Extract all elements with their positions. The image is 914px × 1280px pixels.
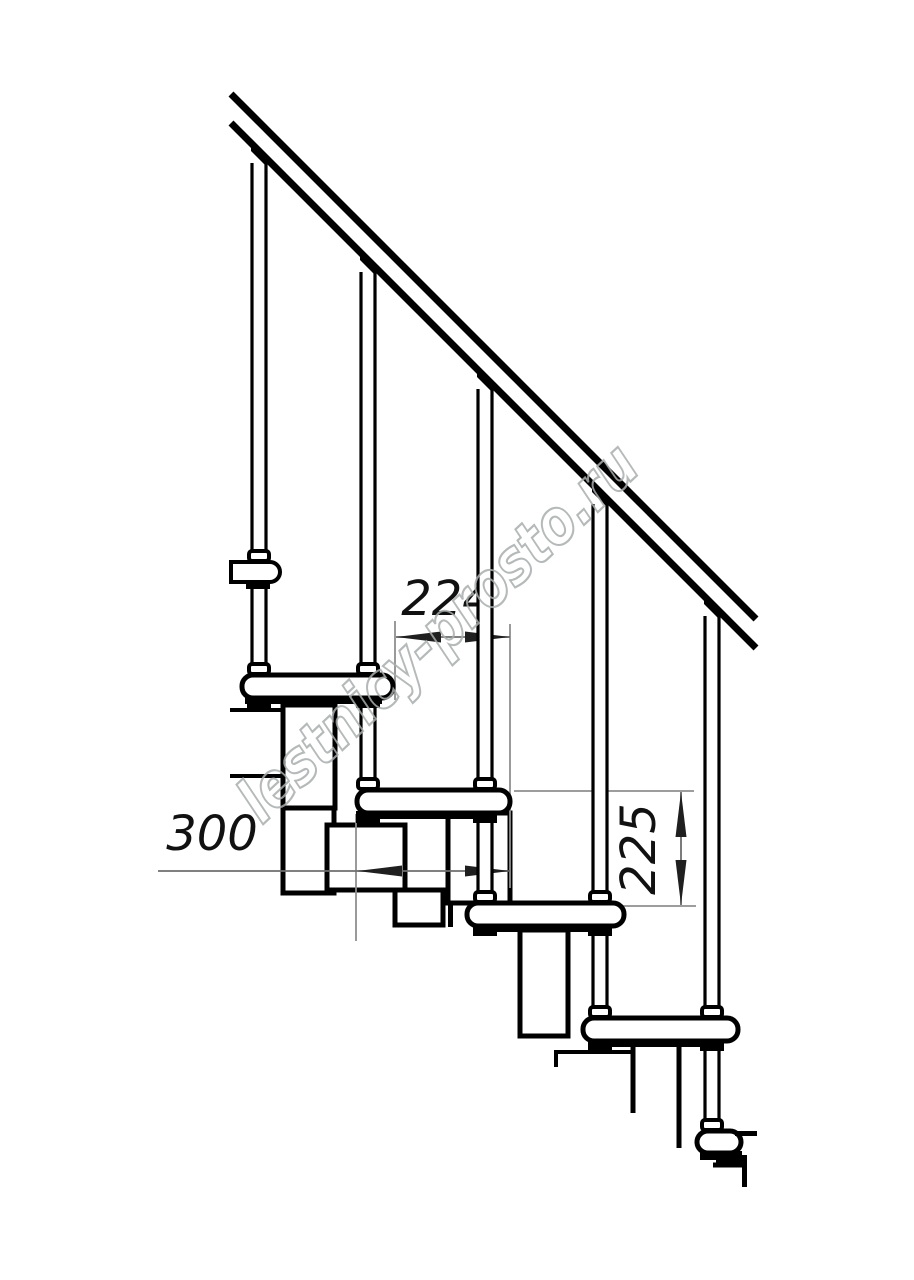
tread-end-view xyxy=(231,562,280,582)
support-module-cut xyxy=(633,1045,679,1148)
tread-cut xyxy=(697,1131,757,1153)
support-module xyxy=(327,825,405,890)
dimension-label-rise: 225 xyxy=(611,803,667,895)
drawing-canvas: 224 300 225 xyxy=(0,0,914,1280)
baluster xyxy=(478,389,492,903)
bottom-cut-step xyxy=(713,1155,747,1187)
support-module xyxy=(395,890,443,925)
balusters xyxy=(252,163,719,1131)
baluster xyxy=(705,616,719,1131)
baluster xyxy=(593,504,607,1018)
tread xyxy=(583,1018,738,1041)
watermark-text: lestnicy-prosto.ru xyxy=(222,428,652,836)
tread xyxy=(357,790,510,813)
arrow-up xyxy=(676,792,687,837)
dimension-label-depth: 300 xyxy=(166,806,258,862)
arrow-down xyxy=(676,860,687,905)
baluster xyxy=(252,163,266,675)
staircase-technical-drawing: 224 300 225 xyxy=(0,0,914,1280)
tread xyxy=(467,903,624,926)
